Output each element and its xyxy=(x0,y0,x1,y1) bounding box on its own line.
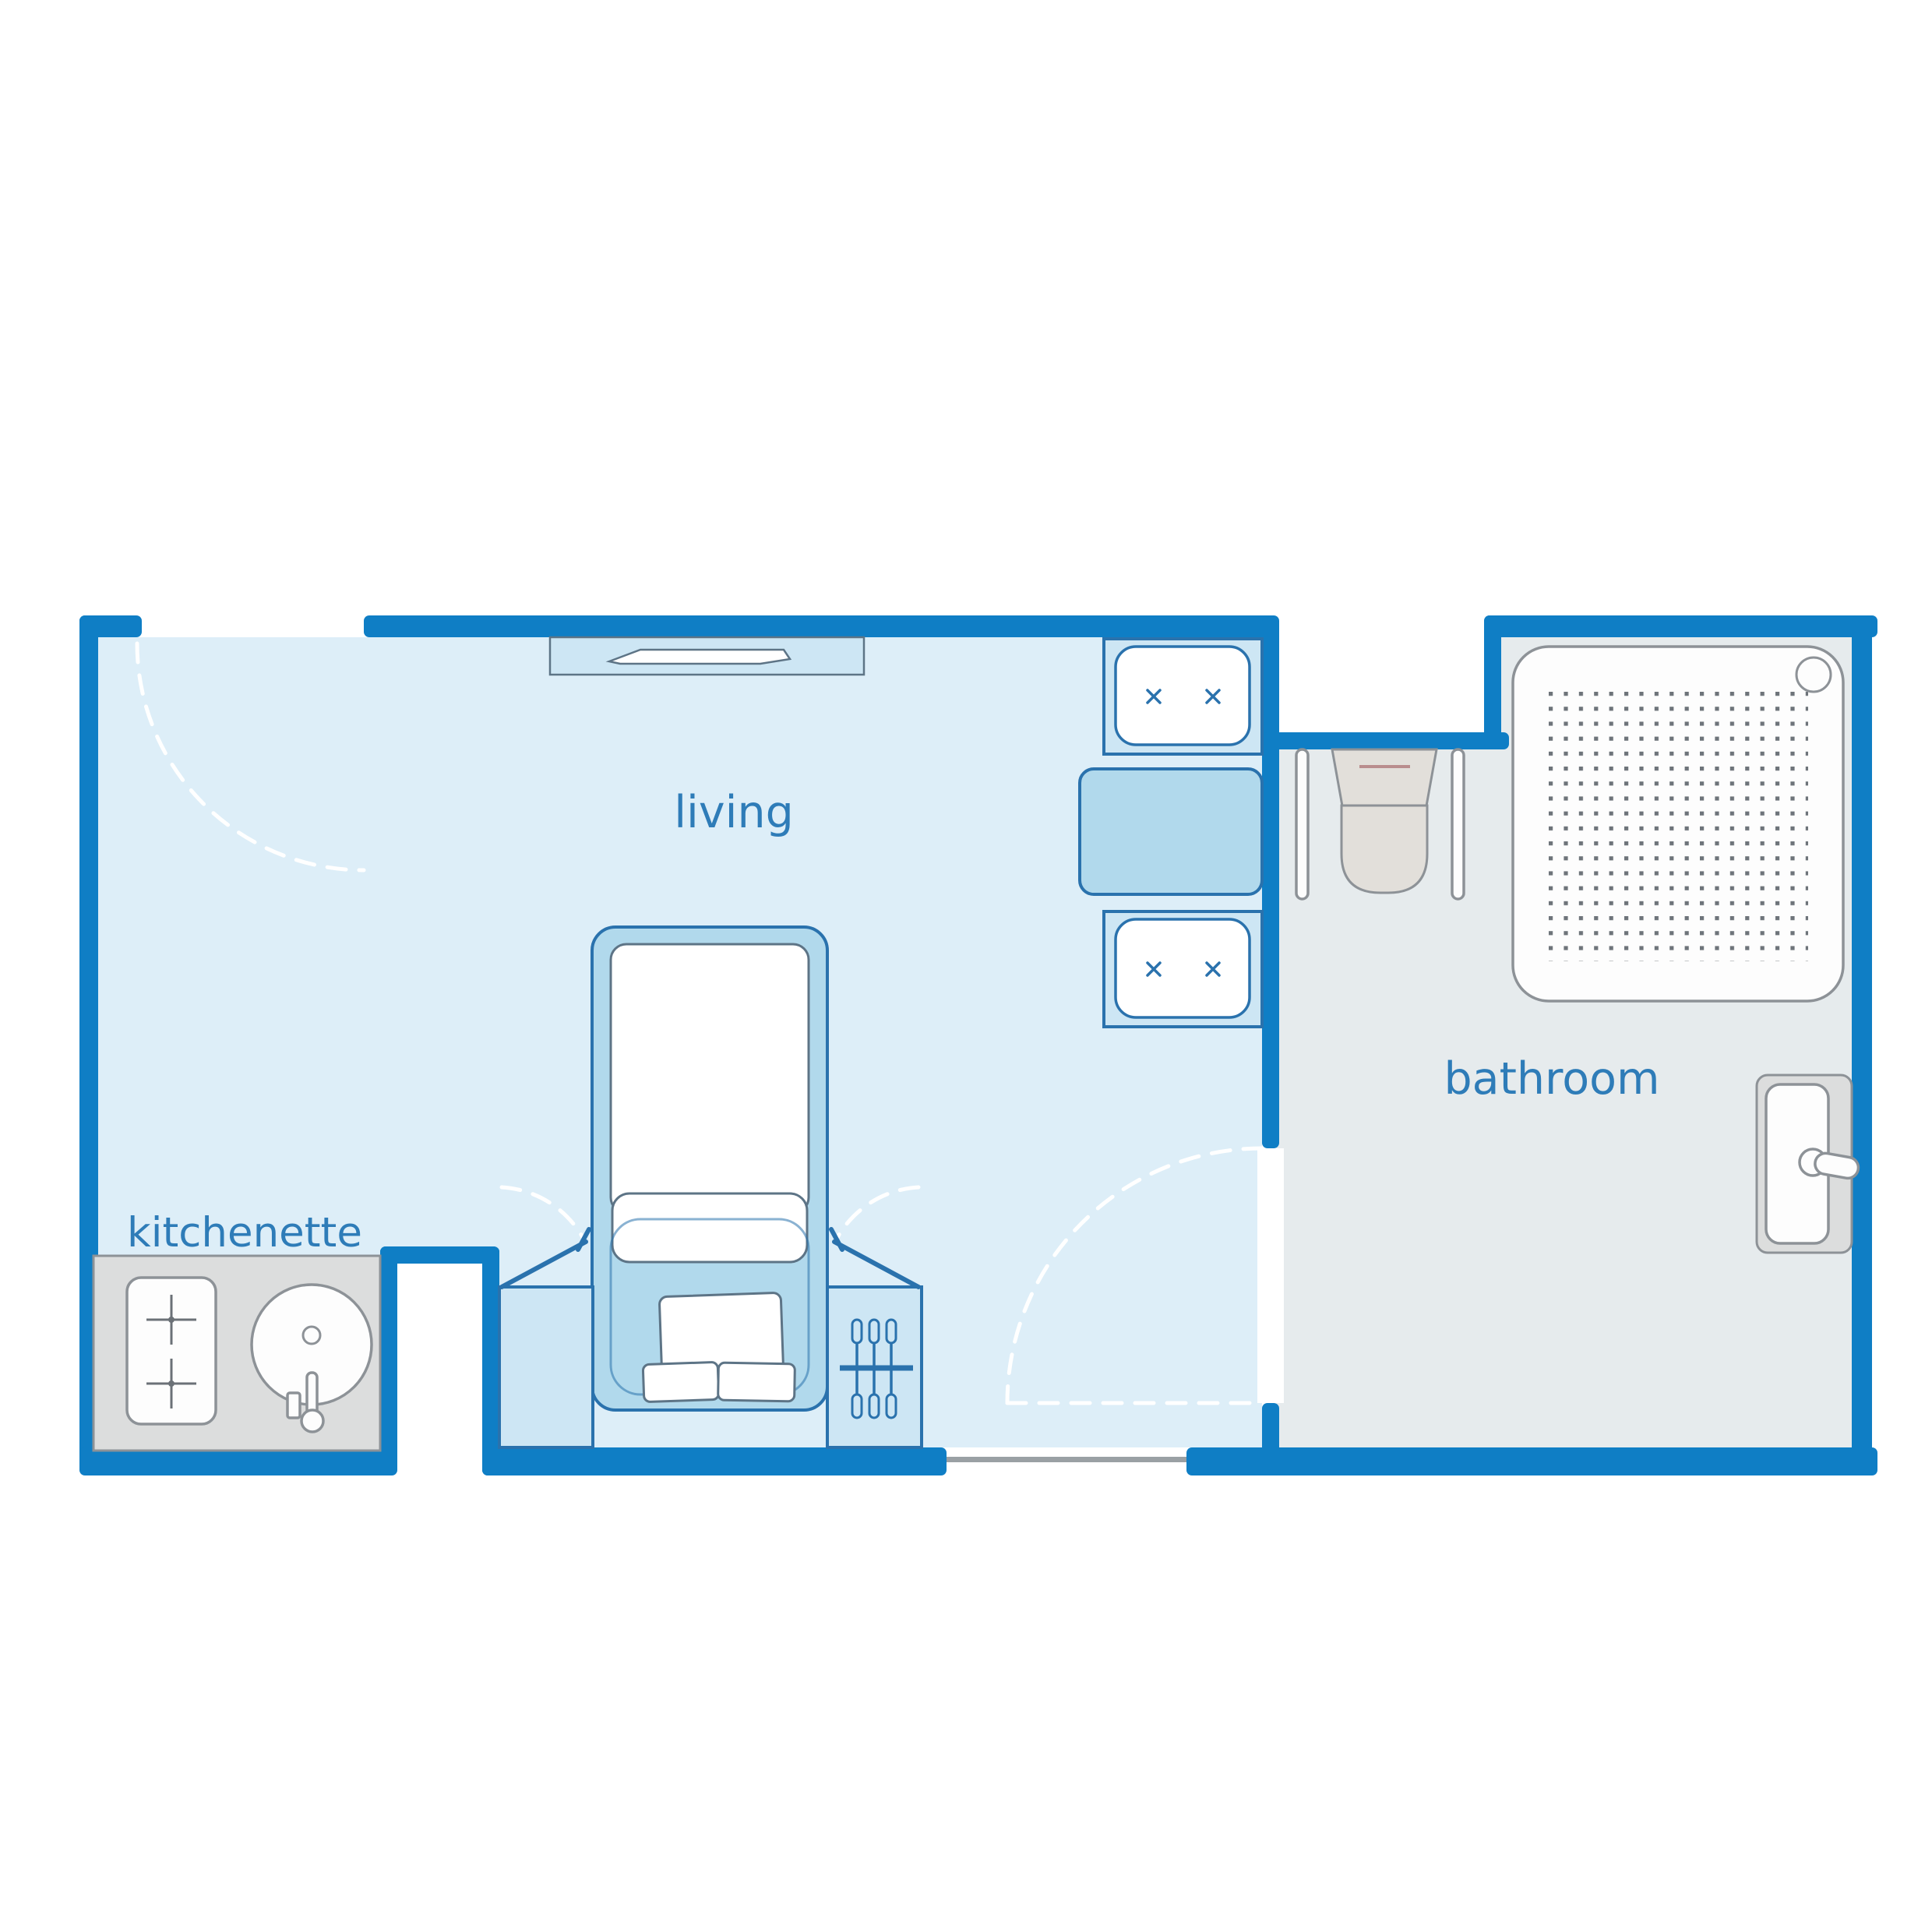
toilet-tank xyxy=(1332,749,1437,810)
shower-icon xyxy=(1513,647,1843,1001)
floor-plan: living kitchenette bathroom xyxy=(0,0,1932,1932)
kitchenette xyxy=(93,1256,380,1451)
bathroom-label: bathroom xyxy=(1444,1053,1659,1105)
grab-bar-left xyxy=(1296,749,1308,899)
wall-top-living xyxy=(364,615,1276,637)
cabinet-middle xyxy=(1080,769,1262,894)
toilet-bowl xyxy=(1341,806,1427,893)
exterior-niche-opening xyxy=(397,1264,482,1482)
wall-niche-left xyxy=(380,1246,397,1475)
shower-floor-dots xyxy=(1549,692,1808,961)
washbasin-unit-top xyxy=(1104,639,1262,754)
wall-toilet-niche xyxy=(1262,732,1509,749)
floor-plan-page: living kitchenette bathroom xyxy=(0,0,1932,1932)
washbasin-unit-bottom xyxy=(1104,911,1262,1027)
folded-blanket-flap-right xyxy=(718,1363,795,1401)
window-glass-line xyxy=(947,1457,1186,1462)
bed-sheet xyxy=(611,944,809,1213)
bathroom-sink-icon xyxy=(1757,1075,1860,1253)
bathroom-door-opening xyxy=(1257,1148,1284,1403)
folded-blanket-flap-left xyxy=(643,1362,719,1401)
living-label: living xyxy=(674,787,794,838)
kitchen-faucet-base xyxy=(301,1410,323,1432)
basin-top-bowl xyxy=(1116,647,1250,745)
wall-bottom-right xyxy=(1186,1447,1877,1475)
wall-niche-cap xyxy=(380,1246,499,1265)
grab-bar-right xyxy=(1452,749,1464,899)
kitchen-faucet-handle xyxy=(287,1393,300,1418)
wall-divider-stub xyxy=(1262,1403,1279,1475)
wall-niche-right xyxy=(482,1246,499,1475)
cabinet-left-body xyxy=(499,1287,593,1447)
bed xyxy=(592,927,827,1410)
wall-right xyxy=(1852,615,1872,1475)
wall-top-bathroom xyxy=(1484,615,1877,637)
pillow xyxy=(612,1193,807,1262)
wall-bottom-bed-section xyxy=(482,1447,947,1475)
radiator-vent-icon xyxy=(609,650,790,664)
basin-bottom-bowl xyxy=(1116,919,1250,1017)
wall-divider-mid xyxy=(1262,749,1279,1148)
window-opening-bottom xyxy=(947,1447,1186,1479)
folded-blanket xyxy=(643,1292,795,1401)
cooktop-icon xyxy=(127,1278,216,1424)
kitchenette-label: kitchenette xyxy=(127,1209,362,1257)
